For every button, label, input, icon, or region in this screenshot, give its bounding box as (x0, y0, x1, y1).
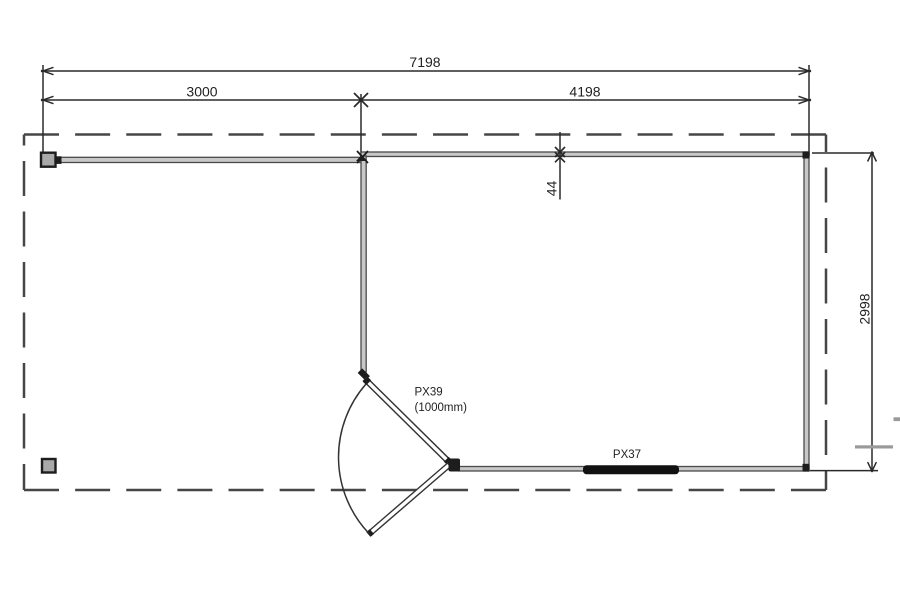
svg-text:7198: 7198 (409, 54, 440, 70)
svg-text:3000: 3000 (186, 84, 217, 100)
svg-text:4198: 4198 (569, 84, 600, 100)
svg-text:44: 44 (544, 181, 560, 197)
svg-text:PX37: PX37 (613, 449, 641, 461)
svg-text:(1000mm): (1000mm) (415, 402, 468, 414)
svg-text:2998: 2998 (857, 293, 873, 324)
svg-text:PX39: PX39 (415, 387, 443, 399)
